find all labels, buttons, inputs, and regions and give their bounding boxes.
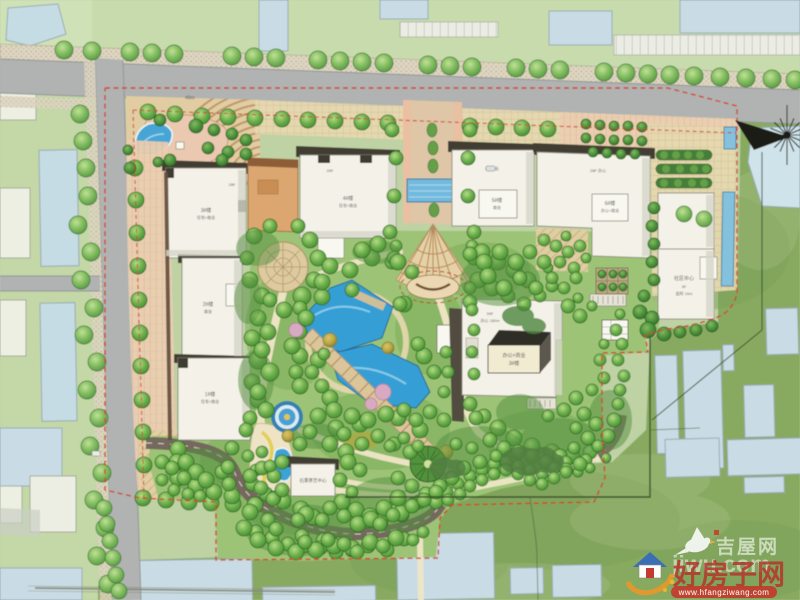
svg-text:好房子网: 好房子网 [672,558,785,590]
svg-text:www.hfangziwang.com: www.hfangziwang.com [678,588,770,597]
